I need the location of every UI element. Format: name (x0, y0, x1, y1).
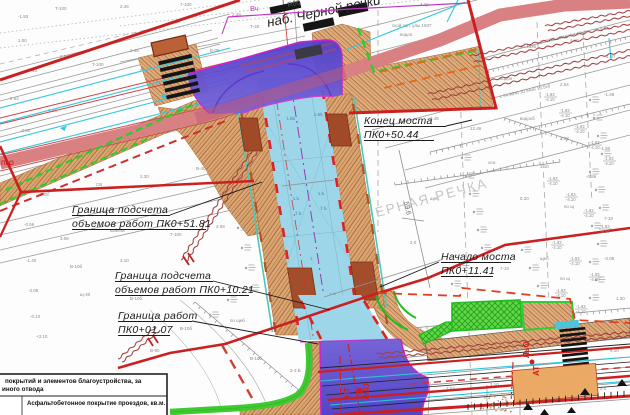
svg-text:В-10б: В-10б (250, 356, 263, 361)
svg-text:-4.10: -4.10 (600, 229, 610, 234)
svg-text:1.65: 1.65 (286, 116, 296, 121)
svg-text:ПК0+01.07: ПК0+01.07 (118, 324, 174, 336)
svg-text:2.54: 2.54 (10, 96, 19, 101)
svg-text:щ-40: щ-40 (80, 292, 91, 297)
svg-text:по щ: по щ (564, 204, 574, 209)
svg-text:+3.10: +3.10 (36, 334, 48, 339)
svg-text:7-10: 7-10 (604, 216, 614, 221)
svg-text:-4.10: -4.10 (590, 277, 600, 282)
svg-text:-4.10: -4.10 (560, 113, 570, 118)
svg-text:-4.10: -4.10 (575, 129, 585, 134)
svg-text:1.30: 1.30 (616, 296, 625, 301)
svg-text:2.0: 2.0 (410, 240, 417, 245)
svg-text:7-100: 7-100 (180, 2, 192, 7)
svg-text:ЛьО: ЛьО (362, 383, 371, 400)
svg-text:-0.10: -0.10 (30, 314, 41, 319)
svg-text:иного отвода: иного отвода (2, 386, 44, 393)
svg-text:по щ: по щ (560, 276, 570, 281)
svg-text:-0.56: -0.56 (24, 222, 35, 227)
svg-text:водосб: водосб (520, 116, 535, 121)
svg-text:ЛьО: ЛьО (522, 341, 531, 358)
svg-text:В-90: В-90 (150, 348, 160, 353)
svg-text:НТ: НТ (343, 387, 352, 398)
svg-text:2-3 Б: 2-3 Б (290, 368, 301, 373)
svg-text:B-10б: B-10б (70, 264, 83, 269)
svg-text:-4.10: -4.10 (552, 245, 562, 250)
svg-text:-4.10: -4.10 (545, 97, 555, 102)
svg-text:-1.40: -1.40 (26, 258, 37, 263)
svg-text:-2.00: -2.00 (20, 128, 31, 133)
svg-text:АТ: АТ (532, 366, 541, 376)
svg-text:Граница работ: Граница работ (118, 310, 198, 322)
svg-text:-1.48: -1.48 (604, 92, 615, 97)
svg-text:Граница подсчета: Граница подсчета (115, 270, 211, 282)
svg-text:3.10: 3.10 (120, 258, 129, 263)
svg-text:7-100: 7-100 (170, 232, 182, 237)
svg-text:B-10б: B-10б (130, 296, 143, 301)
svg-text:покрытий и элементов благоустр: покрытий и элементов благоустройства, за (5, 377, 142, 385)
svg-text:Конец моста: Конец моста (364, 115, 433, 127)
svg-text:-0.56: -0.56 (586, 174, 597, 179)
svg-text:Начало моста: Начало моста (441, 251, 516, 263)
svg-text:Асфальтобетонное покрытие прое: Асфальтобетонное покрытие проездов, кв.м… (27, 400, 165, 407)
svg-text:T-100: T-100 (55, 6, 67, 11)
svg-text:-4.10: -4.10 (556, 293, 566, 298)
svg-text:Т-40: Т-40 (250, 24, 260, 29)
svg-text:ПкО: ПкО (1, 160, 14, 167)
svg-text:2.54: 2.54 (560, 82, 569, 87)
svg-text:Граница подсчета: Граница подсчета (72, 204, 168, 216)
svg-text:-4.10: -4.10 (584, 213, 594, 218)
svg-text:объемов работ ПК0+51.81: объемов работ ПК0+51.81 (72, 218, 211, 230)
svg-text:1.00: 1.00 (18, 38, 27, 43)
svg-text:СВ: СВ (96, 182, 102, 187)
svg-text:2.46: 2.46 (120, 4, 129, 9)
svg-text:T-100: T-100 (92, 62, 104, 67)
svg-text:-2.08: -2.08 (604, 256, 615, 261)
svg-text:-3.08: -3.08 (28, 288, 39, 293)
svg-text:-4.10: -4.10 (590, 145, 600, 150)
svg-text:-1.50: -1.50 (600, 146, 611, 151)
svg-text:щеб: щеб (540, 256, 549, 261)
svg-text:осн.: осн. (488, 160, 497, 165)
svg-text:1.65: 1.65 (313, 112, 323, 117)
svg-text:0.20: 0.20 (520, 196, 529, 201)
svg-text:Вч: Вч (250, 4, 259, 13)
svg-text:2.08: 2.08 (216, 224, 225, 229)
svg-text:по щеб: по щеб (230, 318, 245, 323)
svg-text:ПК0+11.41: ПК0+11.41 (441, 265, 495, 277)
svg-text:-4.10: -4.10 (570, 261, 580, 266)
svg-text:3.08: 3.08 (60, 236, 69, 241)
svg-text:ПК0+50.44: ПК0+50.44 (364, 129, 419, 141)
svg-text:водоп: водоп (400, 32, 413, 37)
svg-text:-4.10: -4.10 (604, 161, 614, 166)
svg-text:B-10б: B-10б (180, 326, 193, 331)
svg-text:12.46: 12.46 (470, 126, 482, 131)
svg-text:7-10: 7-10 (500, 266, 510, 271)
svg-text:-4.10: -4.10 (548, 181, 558, 186)
svg-text:-1.93: -1.93 (18, 14, 29, 19)
svg-text:-4.10: -4.10 (566, 197, 576, 202)
svg-text:2.30: 2.30 (140, 174, 149, 179)
svg-text:2.48: 2.48 (130, 48, 139, 53)
svg-text:-4.10: -4.10 (576, 309, 586, 314)
